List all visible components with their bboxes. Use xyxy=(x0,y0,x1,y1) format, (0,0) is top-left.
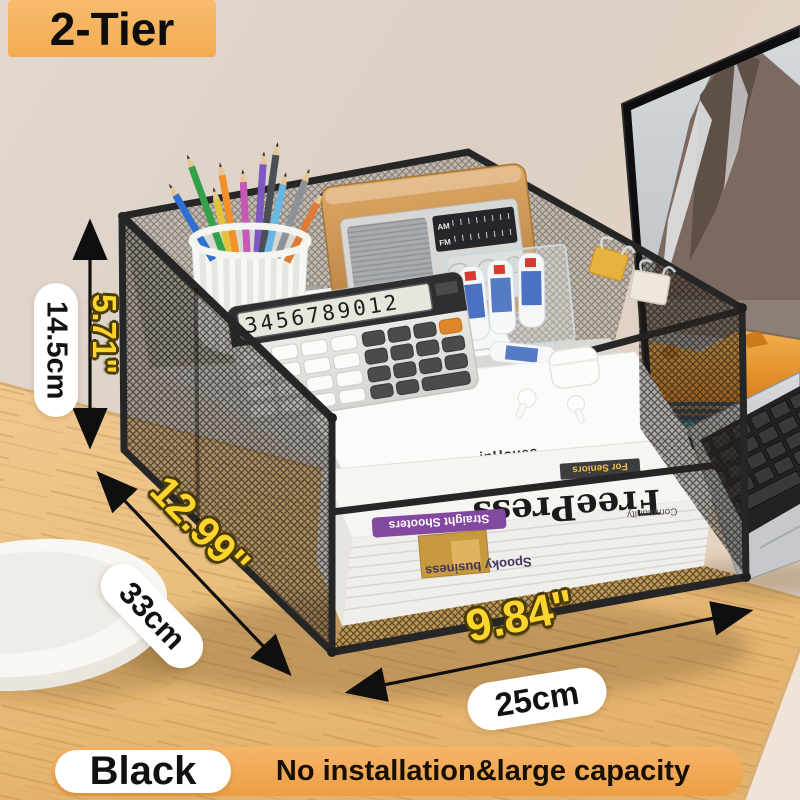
color-option-badge: Black xyxy=(55,750,231,793)
height-metric-label: 14.5cm xyxy=(34,283,78,417)
tier-badge: 2-Tier xyxy=(8,0,216,57)
footer-tagline: No installation&large capacity xyxy=(231,755,743,788)
product-photo-stage: RM HA AM FM xyxy=(0,0,800,800)
height-imperial-label: 5.71" xyxy=(86,294,122,414)
footer-banner: Black No installation&large capacity xyxy=(51,747,743,796)
